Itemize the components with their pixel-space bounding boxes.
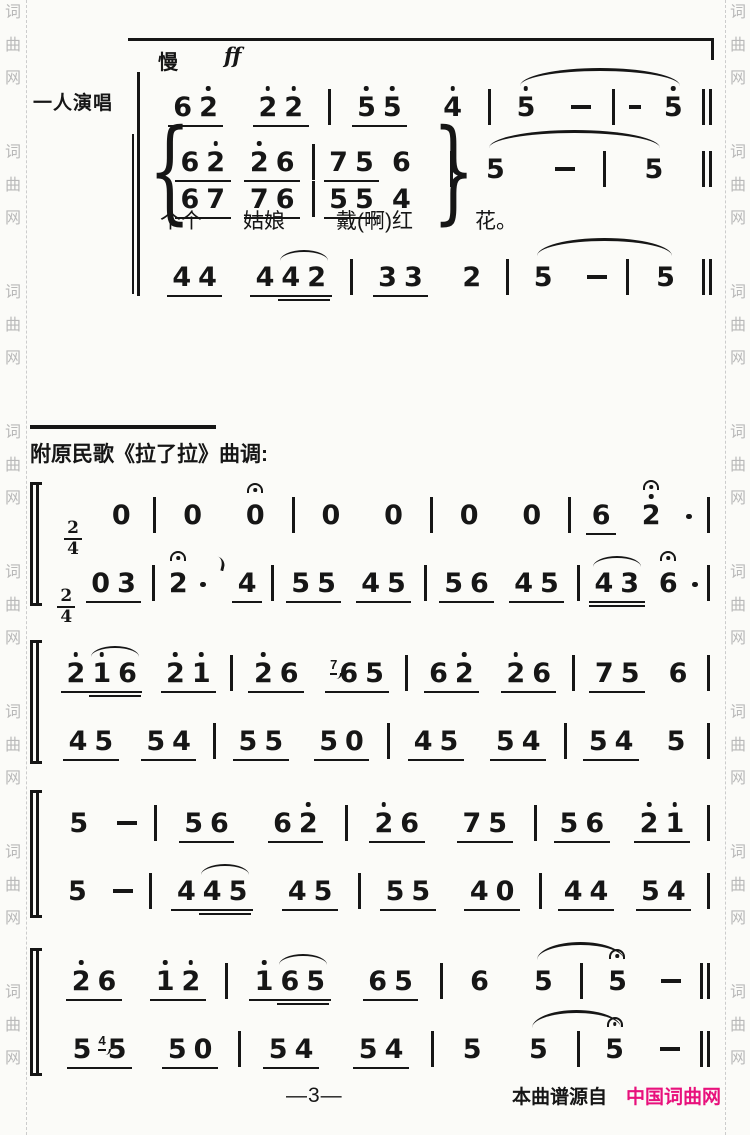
note-group: 62 [168,94,224,127]
note: 5 [513,94,539,121]
extension-dash [571,105,591,110]
watermark-text: 曲 [730,878,746,894]
note: 4 [173,878,199,905]
measure: 55 [434,1036,576,1067]
octave-dot [213,141,218,146]
note-group: 445 [171,878,252,911]
note-digit: 2 [462,262,481,293]
note-digit: 3 [404,262,423,293]
note-group: 5 [651,264,681,295]
note-digit: 5 [387,568,406,599]
note: 6 [467,570,493,597]
watermark-text: 词 [5,565,21,581]
note-digit: 5 [641,876,660,907]
measure: 5 [606,156,702,187]
note-digit: 5 [229,876,248,907]
note: 6 [582,810,608,837]
note-digit: 5 [496,726,515,757]
note: 5 [436,728,462,755]
section-title: 附原民歌《拉了拉》曲调: [30,438,268,468]
note-digit: 0 [91,568,110,599]
note: 5 [288,570,314,597]
note-digit: 7 [462,808,481,839]
source-site-name: 中国词曲网 [626,1082,721,1109]
note-digit: 2 [299,808,318,839]
note: 3 [617,570,643,597]
tempo-marking: 慢 [158,46,178,75]
barline [506,259,509,295]
note-digit: 0 [246,500,265,531]
note-digit: 5 [534,262,553,293]
fermata-icon [660,551,676,561]
note-group: 75 [589,660,645,693]
measure: 4554 [47,728,213,761]
watermark-text: 网 [730,491,746,507]
watermark-text: 曲 [5,1018,21,1034]
note: 6 [529,660,555,687]
note: 6 [588,502,614,529]
note: 1 [188,660,214,687]
note-digit: 5 [534,966,553,997]
note-digit: 4 [590,876,609,907]
note-digit: 4 [470,876,489,907]
note-digit: 6 [273,808,292,839]
augmentation-dot [692,582,698,588]
note: 5 [379,94,405,121]
measure: 5454 [241,1036,431,1069]
note: 5 [261,728,287,755]
note-group: 56 [439,570,495,603]
note-group: 26 [248,660,304,693]
note: 2 [165,570,191,597]
slur-arc [280,250,328,261]
slur-arc [593,556,641,567]
note-group: 5 [62,878,92,909]
system-bracket [30,482,42,606]
barline [577,1031,580,1067]
note-digit: 5 [269,1034,288,1065]
note: 2 [459,264,485,291]
note-digit: 5 [645,154,664,185]
note: 1 [89,660,115,687]
note-digit: 6 [429,658,448,689]
note-group: 0 [517,502,547,533]
note-digit: 3 [620,568,639,599]
note-digit: 5 [184,808,203,839]
barline [149,873,152,909]
note: 4 [234,570,260,597]
note-group: 5 [457,1036,487,1067]
note-group: 5 [64,810,94,841]
watermark-text: 词 [5,845,21,861]
note-group: 0 [379,502,409,533]
measure: 4554 [390,728,564,761]
barline [230,655,233,691]
note-digit: 2 [166,658,185,689]
note-digit: 4 [564,876,583,907]
note: 5 [530,264,556,291]
barline [424,565,427,601]
folk-tune-system-3: 5566226755621 54454555404454 [30,788,712,920]
barline [700,963,703,999]
barline [539,873,542,909]
upper-part-line: 24000000062 [47,488,710,534]
note-digit: 4 [281,262,300,293]
note-digit: 6 [98,966,117,997]
note-group: 03 [86,570,142,603]
note-digit: 4 [514,568,533,599]
note-group: 5 [528,968,558,999]
measure: 5 [580,1036,700,1067]
note-digit: 4 [256,262,275,293]
note: 5 [408,878,434,905]
lyric-word: 姑娘 [243,205,285,235]
measure: 5 [583,968,700,999]
note-group: 26 [66,968,122,1001]
note: 6 [170,94,196,121]
note-group: 45 [408,728,464,761]
note-digit: 5 [69,808,88,839]
note-digit: 5 [365,658,384,689]
note-group: 0 [454,502,484,533]
note: 5 [164,1036,190,1063]
note-digit: 5 [359,1034,378,1065]
octave-dot [524,86,529,91]
barline [154,805,157,841]
note: 7 [459,810,485,837]
watermark-text: 曲 [730,598,746,614]
page-number: —3— [286,1084,343,1108]
extension-dash [113,889,133,894]
barline [700,1031,703,1067]
note-digit: 5 [664,92,683,123]
time-signature: 24 [57,588,75,627]
note: 0 [492,878,518,905]
watermark-text: 词 [730,985,746,1001]
note-digit: 2 [72,966,91,997]
barline [702,259,705,295]
measure: 545 [567,728,707,761]
lyric-word: 戴(啊)红 [336,205,413,235]
measure: 44442 [148,264,350,297]
note-group: 50 [314,728,370,761]
note-group: 2 [457,264,487,295]
lower-part-line: 24032455455645436 [47,556,710,602]
slur-arc [91,646,139,657]
measure: 5 [453,156,603,187]
barline [709,259,712,295]
watermark-text: 网 [5,631,21,647]
note-group: 44 [558,878,614,911]
note-digit: 5 [94,726,113,757]
note-digit: 6 [339,658,358,689]
barline [534,805,537,841]
note-digit: 4 [414,726,433,757]
measure: 554 [331,94,488,127]
note-digit: 6 [470,966,489,997]
watermark-text: 网 [730,631,746,647]
measure: 16565 [228,968,439,1001]
note-digit: 6 [400,808,419,839]
grace-note: 7 [330,657,337,675]
note-digit: 0 [194,1034,213,1065]
octave-dot [671,86,676,91]
page-footer: —3— 本曲谱源自 中国词曲网 [0,1078,750,1112]
note: 2 [304,264,330,291]
barline [707,805,710,841]
note: 5 [354,94,380,121]
barline [707,497,710,533]
note-digit: 5 [486,154,505,185]
octave-dot [450,86,455,91]
fermata-icon [170,551,186,561]
time-signature: 24 [64,520,82,559]
note-group: 54 [636,878,692,911]
note-digit: 5 [306,966,325,997]
extension-dash [587,275,607,280]
upper-part-line: 21621267656226756 [47,646,710,692]
note: 4 [381,1036,407,1063]
note-digit: 5 [560,808,579,839]
barline [572,655,575,691]
barline [707,655,710,691]
note-group: 5 [511,94,541,125]
barline [612,89,615,125]
note-digit: 4 [172,262,191,293]
octave-dot [649,494,654,499]
note: 2 [503,660,529,687]
note-group: 0 [178,502,208,533]
note: 4 [511,570,537,597]
note: 5 [382,878,408,905]
note: 5 [69,1036,95,1063]
sixteenth-beam [277,1003,329,1006]
octave-dot [261,652,266,657]
time-signature-numerator: 2 [57,588,75,606]
measure: 2403 [47,570,152,618]
octave-dot [266,86,271,91]
note-group: 5 [481,156,511,187]
measure: 21621 [47,660,230,693]
note-digit: 1 [255,966,274,997]
lower-part-line: 54454555404454 [47,864,710,910]
note-digit: 0 [345,726,364,757]
note: 6 [270,810,296,837]
note-digit: 5 [605,1034,624,1065]
measure: 6226 [408,660,573,693]
barline [707,963,710,999]
measure: 6222 [148,94,328,127]
note: 5 [459,1036,485,1063]
tie-arc [537,942,624,960]
barline [709,151,712,187]
barline [238,1031,241,1067]
extension-dash [117,821,137,826]
watermark-text: 网 [5,1051,21,1067]
note-group: 545 [67,1036,132,1069]
barline [271,565,274,601]
note-digit: 4 [361,568,380,599]
note-group: 21 [634,810,690,843]
note: 5 [441,570,467,597]
note: 0 [190,1036,216,1063]
note: 2 [68,968,94,995]
note-group: 62 [268,810,324,843]
note: 0 [342,728,368,755]
breath-mark-icon [212,556,227,572]
note-group: 765 [325,660,390,693]
fermata-icon [247,483,263,493]
section-divider [30,425,216,429]
note: 2 [250,660,276,687]
watermark-text: 曲 [5,318,21,334]
note-digit: 5 [656,262,675,293]
note-group: 5 [639,156,669,187]
sheet-music-page: 词曲网词曲网词曲网词曲网词曲网词曲网词曲网词曲网 词曲网词曲网词曲网词曲网词曲网… [0,0,750,1135]
measure: 5645 [427,570,577,603]
note-digit: 5 [529,1034,548,1065]
measure: 65 [443,968,581,999]
time-signature-numerator: 2 [64,520,82,538]
sixteenth-beam [199,913,251,916]
note: 0 [519,502,545,529]
note-group: 6 [653,570,683,601]
watermark-text: 网 [730,351,746,367]
measure: 5662 [157,810,345,843]
tie-arc [520,68,680,86]
octave-dot [364,86,369,91]
measure: 24 [155,570,271,603]
barline [225,963,228,999]
note-digit: 2 [169,568,188,599]
note: 4 [284,878,310,905]
note-digit: 5 [146,726,165,757]
note: 0 [456,502,482,529]
note-group: 0 [240,502,270,533]
note-digit: 5 [463,1034,482,1065]
source-attribution: 本曲谱源自 [512,1082,607,1109]
note: 5 [653,264,679,291]
note: 6 [665,660,691,687]
note-digit: 5 [540,568,559,599]
note-digit: 0 [384,500,403,531]
note: 0 [108,502,134,529]
note-group: 56 [554,810,610,843]
note: 4 [591,570,617,597]
note-digit: 6 [173,92,192,123]
measure: 756 [575,660,707,693]
note: 5 [530,968,556,995]
note-digit: 5 [168,1034,187,1065]
vocal-system: 一人演唱 慢 ff { } 622255455 6226756 6776554 … [0,38,750,310]
measure: 2612 [47,968,225,1001]
note-group: 40 [464,878,520,911]
note-digit: 5 [264,726,283,757]
note-group: 54 [583,728,639,761]
watermark-text: 曲 [730,1018,746,1034]
measure: 436 [580,570,708,603]
note: 5 [602,1036,628,1063]
barline [626,259,629,295]
octave-dot [382,802,387,807]
note: 4 [560,878,586,905]
extension-dash [555,167,575,172]
note: 4 [586,878,612,905]
note: 5 [225,878,251,905]
note-digit: 2 [640,808,659,839]
watermark-text: 网 [5,351,21,367]
sixteenth-beam [278,299,330,302]
note-group: 45 [282,878,338,911]
note-digit: 5 [488,808,507,839]
note: 7 [591,660,617,687]
note-digit: 5 [394,966,413,997]
tie-arc [532,1010,621,1028]
barline [405,655,408,691]
note: 5 [537,570,563,597]
note: 6 [115,660,141,687]
note-digit: 5 [386,876,405,907]
note-group: 55 [286,570,342,603]
note-digit: 0 [496,876,515,907]
note-group: 6 [663,660,693,691]
barline [702,89,705,125]
note-digit: 4 [667,876,686,907]
octave-dot [673,802,678,807]
note: 6 [467,968,493,995]
note: 4 [291,1036,317,1063]
measure: 54550 [47,1036,238,1069]
note: 4 [195,264,221,291]
note-digit: 1 [192,658,211,689]
note: 5 [314,570,340,597]
note-digit: 5 [317,568,336,599]
barline [431,1031,434,1067]
note-group: 33 [373,264,429,297]
note: 5 [143,728,169,755]
note: 5 [585,728,611,755]
note: 4 [278,264,304,291]
note-digit: 0 [321,500,340,531]
note-group: 55 [233,728,289,761]
measure: 5 [509,264,626,295]
measure: 44545 [152,878,358,911]
note: 2 [451,660,477,687]
note: 3 [400,264,426,291]
watermark-text: 网 [5,911,21,927]
note-group: 45 [63,728,119,761]
note: 76 [327,660,362,687]
measure: 4454 [542,878,707,911]
extension-dash [660,1047,680,1052]
note: 3 [375,264,401,291]
measure: 2675 [348,810,534,843]
system-bracket [30,948,42,1076]
lyric-word: 花。 [475,205,517,235]
measure: 5540 [361,878,540,911]
note: 5 [181,810,207,837]
note-digit: 4 [172,726,191,757]
tie-arc [537,238,672,256]
note-group: 0 [316,502,346,533]
measure: 00 [156,502,291,533]
watermark-text: 网 [5,771,21,787]
note: 5 [384,570,410,597]
lyrics-line: 个个 姑娘 戴(啊)红 花。 [0,205,750,233]
watermark-text: 词 [5,425,21,441]
octave-dot [79,960,84,965]
octave-dot [291,86,296,91]
